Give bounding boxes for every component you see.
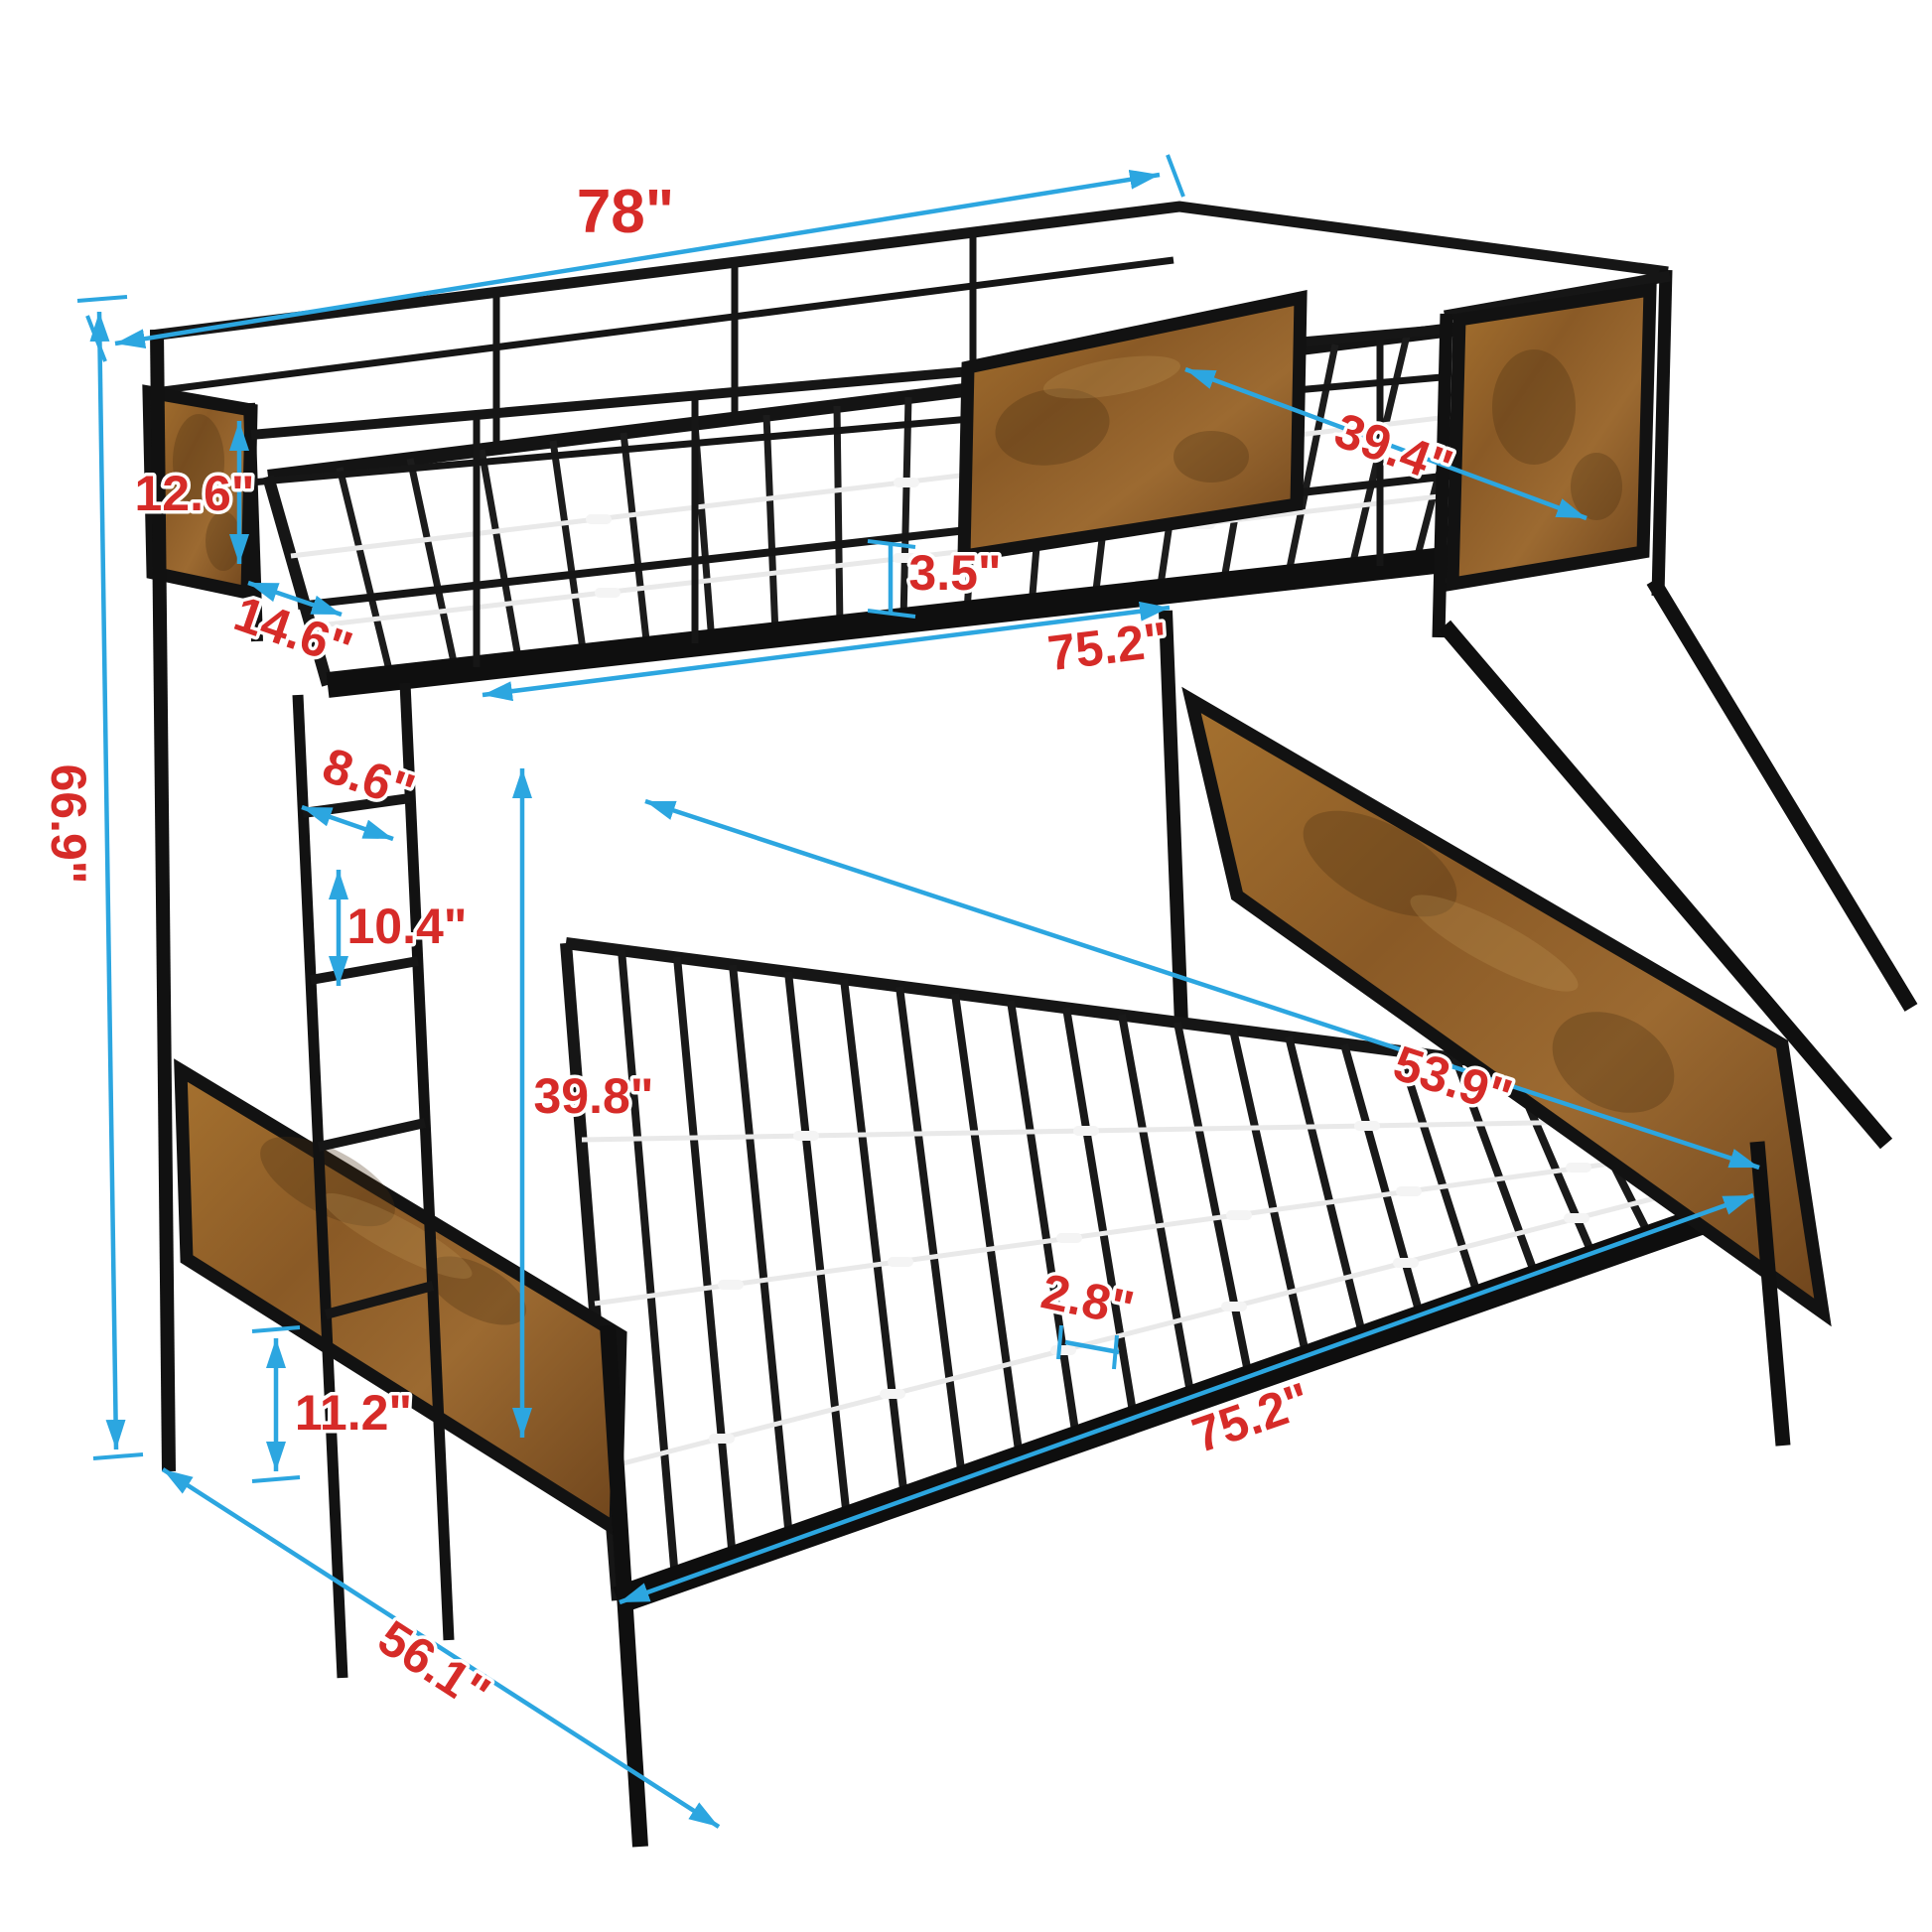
dimension-label: 12.6" xyxy=(134,466,254,521)
ladder-right-rail xyxy=(405,683,449,1640)
dimension-label: 66.9" xyxy=(41,763,96,884)
dimension-lower-slat-length: 75.2" xyxy=(620,1195,1753,1602)
dimension-label: 3.5" xyxy=(908,545,1001,601)
dimension-label: 10.4" xyxy=(346,898,467,954)
bunk-bed-dimension-diagram: 78" 39.4" 12.6" 14.6" 3.5" 75.2" 8.6" xyxy=(0,0,1932,1932)
dimension-label: 11.2" xyxy=(295,1385,412,1441)
mid-support-post xyxy=(1166,611,1181,1025)
dimension-overall-height: 66.9" xyxy=(41,297,143,1458)
upper-right-rear-post xyxy=(1658,270,1666,596)
dimension-label: 78" xyxy=(577,178,674,246)
slanted-rear-leg xyxy=(1653,581,1911,1008)
dimension-label: 39.8" xyxy=(533,1068,653,1124)
lower-footboard-panel xyxy=(1191,700,1823,1312)
dimension-label: 56.1" xyxy=(368,1609,499,1722)
upper-right-headboard xyxy=(1439,276,1670,637)
lower-headboard-panel xyxy=(181,1070,621,1529)
dimension-label: 2.8" xyxy=(1036,1263,1139,1336)
diagram-canvas: 78" 39.4" 12.6" 14.6" 3.5" 75.2" 8.6" xyxy=(0,0,1932,1932)
